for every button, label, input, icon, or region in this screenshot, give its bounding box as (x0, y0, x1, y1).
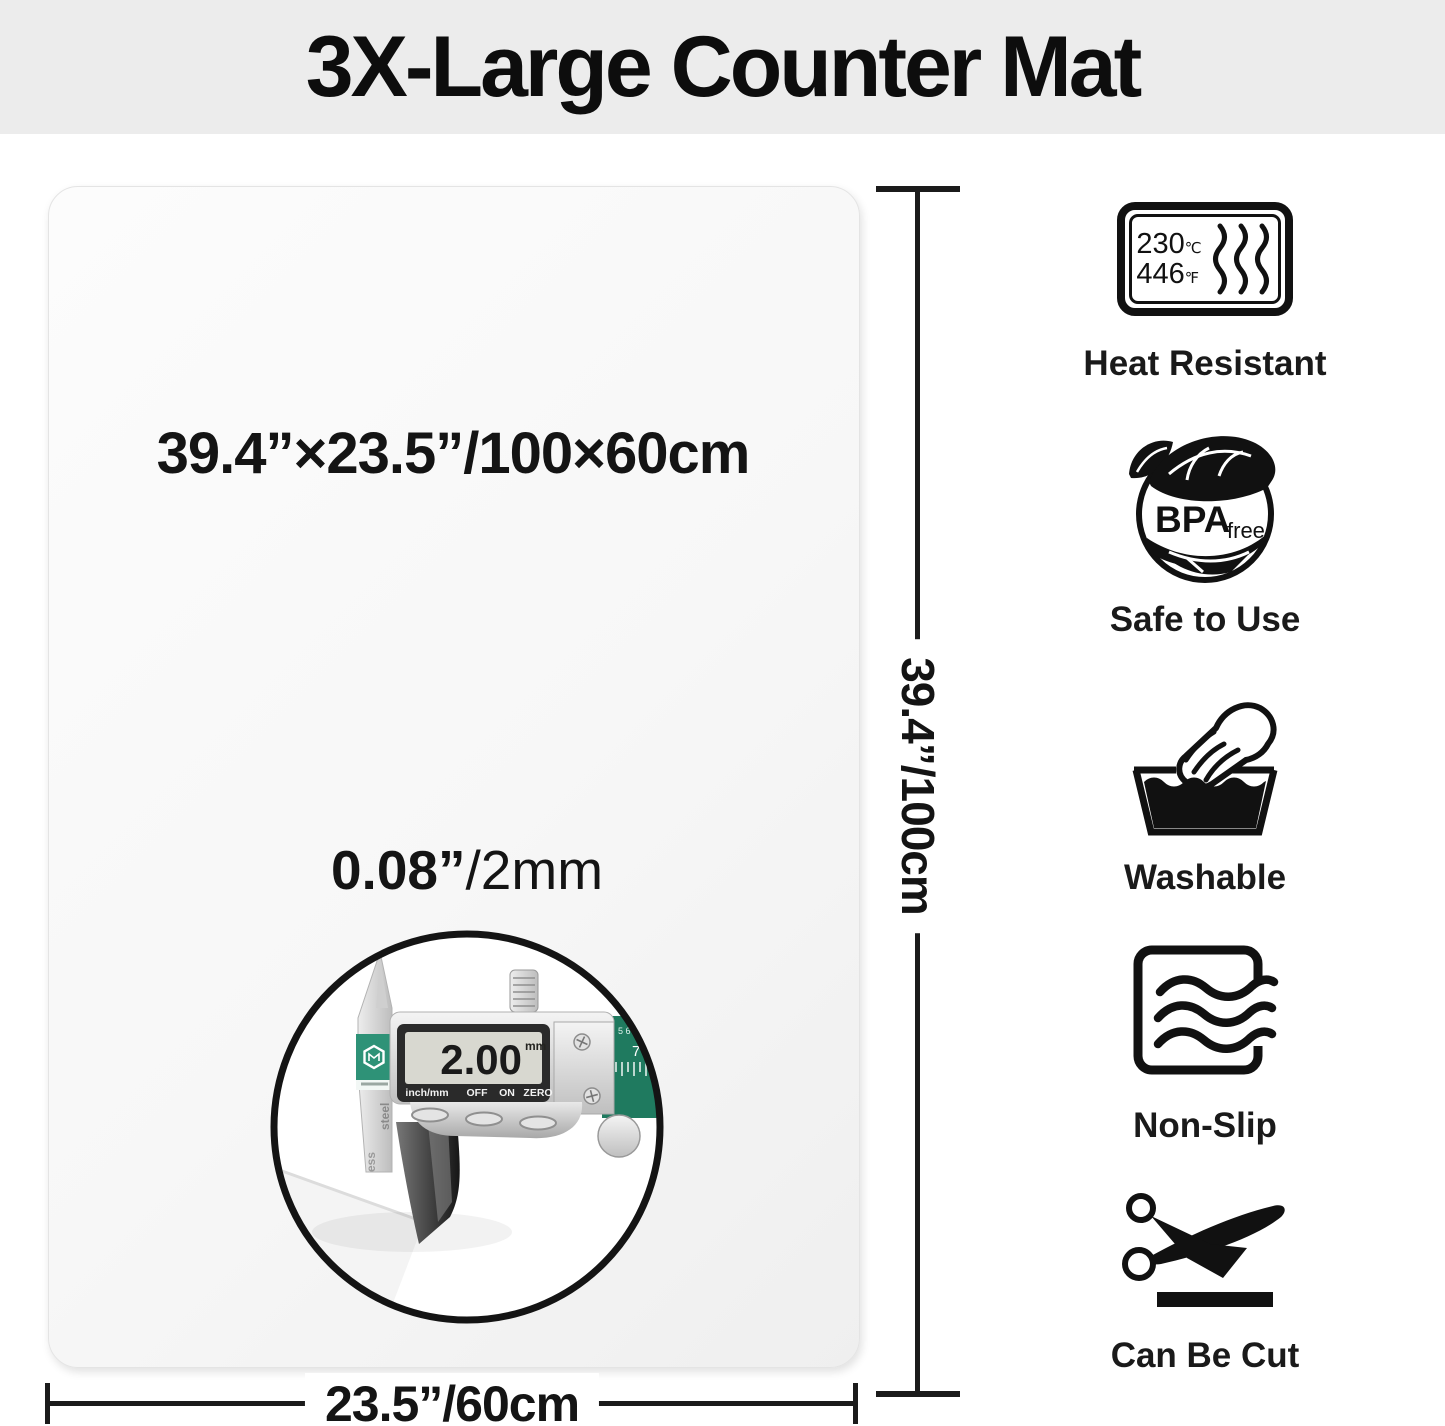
caliper-inset-illustration: steel ess 5 6 7 (262, 922, 672, 1332)
height-dim-bottom-cap (876, 1391, 960, 1397)
temp-celsius-unit: ℃ (1185, 240, 1202, 257)
caliper-side-text-1: ess (364, 1152, 378, 1172)
caliper-button-label: OFF (467, 1087, 489, 1099)
feature-label: Non-Slip (1050, 1106, 1360, 1146)
bpa-free-icon: BPA free (1121, 422, 1289, 586)
hand-icon (1179, 705, 1273, 787)
caliper-unit: mm (525, 1039, 546, 1053)
caliper-button-label: ZERO (523, 1087, 552, 1099)
caliper-screw (584, 1088, 600, 1104)
caliper-screw (574, 1034, 590, 1050)
non-slip-icon (1126, 938, 1284, 1094)
washable-icon (1120, 684, 1290, 842)
bpa-badge-main: BPA (1155, 499, 1230, 540)
temp-fahrenheit: 446 (1136, 258, 1184, 290)
cut-bar (1157, 1292, 1273, 1307)
feature-bpa-free: BPA free Safe to Use (1050, 422, 1360, 640)
feature-heat-resistant: 230℃ 446℉ Heat Resistant (1050, 202, 1360, 384)
height-dimension-label: 39.4”/100cm (883, 639, 953, 933)
feature-label: Safe to Use (1050, 600, 1360, 640)
bpa-badge-sub: free (1227, 518, 1265, 543)
feature-label: Washable (1050, 858, 1360, 898)
caliper-reading: 2.00 (440, 1036, 522, 1083)
temp-celsius: 230 (1136, 228, 1184, 260)
caliper-right-plate (554, 1022, 614, 1114)
width-dimension-label: 23.5”/60cm (305, 1373, 599, 1426)
mat-size-label: 39.4”×23.5”/100×60cm (48, 420, 858, 487)
temp-fahrenheit-unit: ℉ (1185, 270, 1199, 287)
title-banner: 3X-Large Counter Mat (0, 0, 1445, 134)
thickness-mm: /2mm (466, 839, 604, 901)
caliper-roller (598, 1115, 640, 1157)
heat-resistant-icon: 230℃ 446℉ (1117, 202, 1293, 316)
feature-label: Heat Resistant (1050, 344, 1360, 384)
feature-non-slip: Non-Slip (1050, 938, 1360, 1146)
caliper-button-label: inch/mm (405, 1087, 448, 1099)
page-title: 3X-Large Counter Mat (306, 18, 1140, 117)
scissors-icon (1115, 1186, 1295, 1326)
width-dim-right-cap (853, 1383, 858, 1424)
product-infographic: 3X-Large Counter Mat 39.4”×23.5”/100×60c… (0, 0, 1445, 1426)
caliper-lcd: 2.00 mm inch/mm OFF ON ZERO (397, 1024, 553, 1102)
caliper-side-text-2: steel (378, 1103, 392, 1130)
feature-label: Can Be Cut (1050, 1336, 1360, 1376)
thickness-inches: 0.08” (331, 839, 466, 901)
feature-can-be-cut: Can Be Cut (1050, 1186, 1360, 1376)
mat-thickness-label: 0.08”/2mm (262, 838, 672, 902)
heat-waves-icon (1212, 221, 1274, 297)
caliper-button-label: ON (499, 1087, 515, 1099)
feature-washable: Washable (1050, 684, 1360, 898)
